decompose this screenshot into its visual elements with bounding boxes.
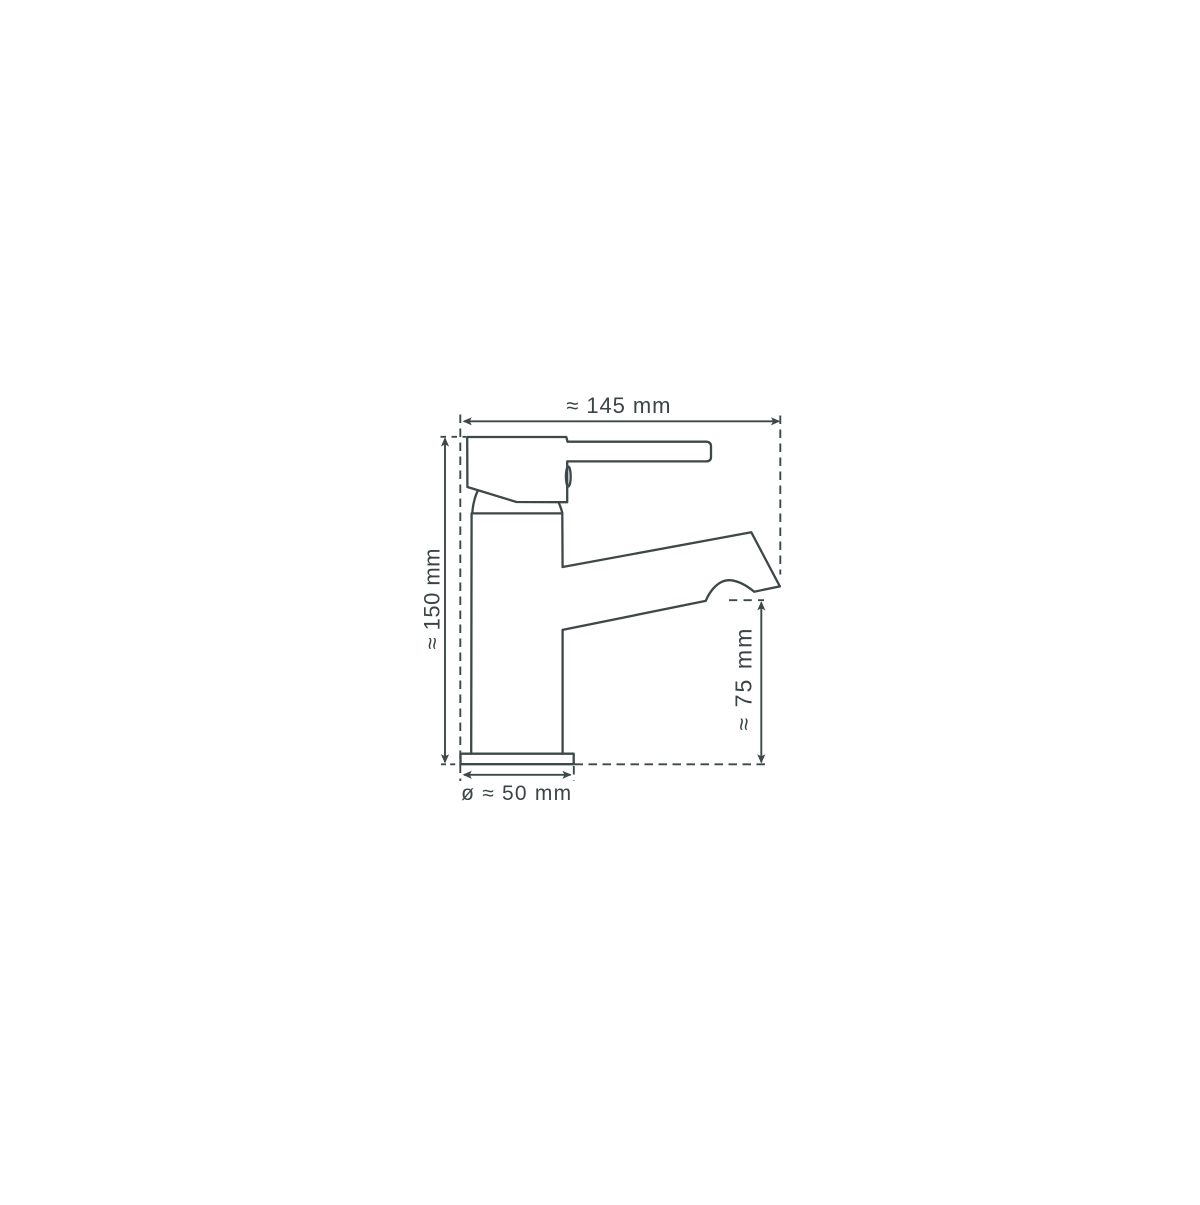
svg-text:≈ 145 mm: ≈ 145 mm xyxy=(566,393,670,418)
svg-text:≈ 150 mm: ≈ 150 mm xyxy=(420,549,445,650)
svg-text:ø ≈ 50 mm: ø ≈ 50 mm xyxy=(461,782,571,805)
